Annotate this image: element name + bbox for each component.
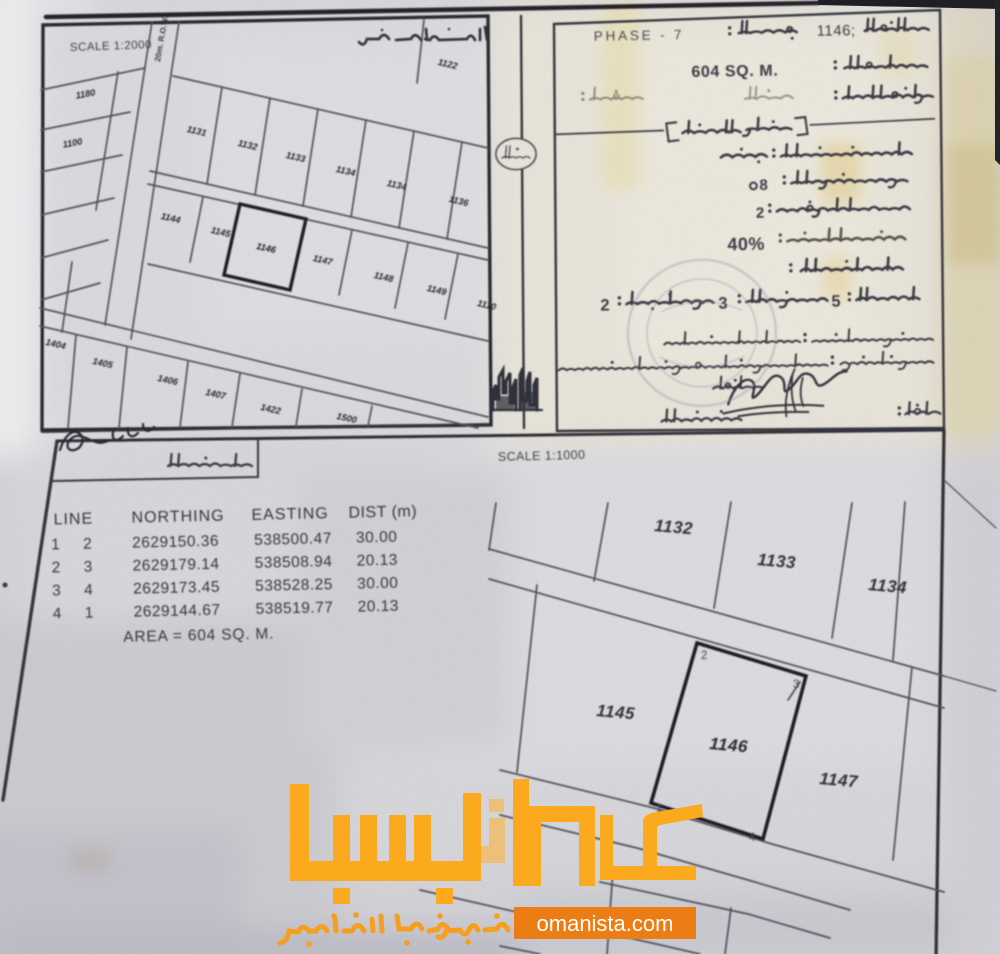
svg-text:omanista.com: omanista.com bbox=[537, 911, 674, 936]
